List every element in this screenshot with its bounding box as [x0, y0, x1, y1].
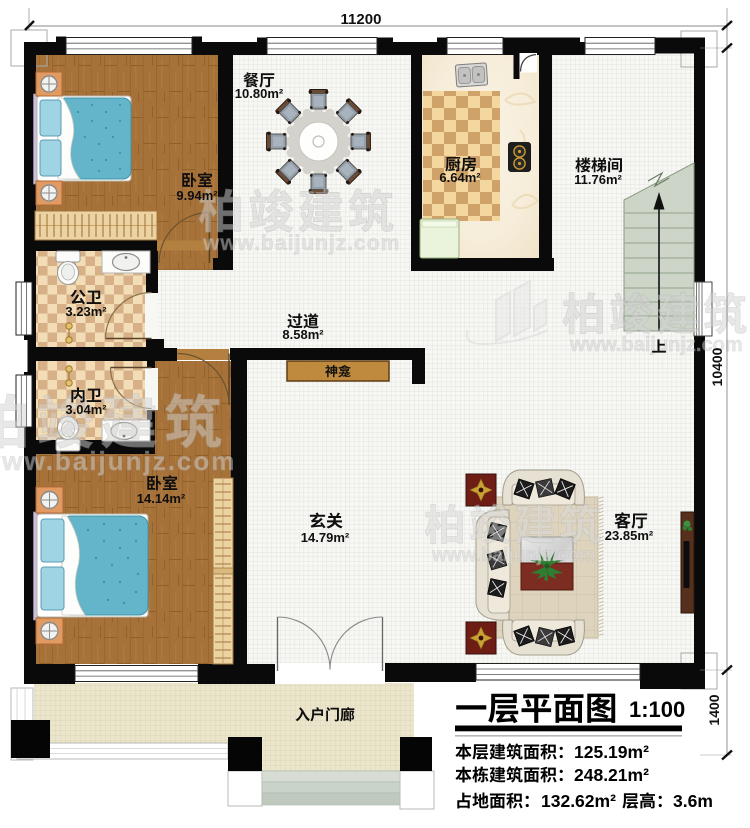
svg-text:www.baijunjz.com: www.baijunjz.com — [0, 446, 236, 476]
svg-text:www.baijunjz.com: www.baijunjz.com — [202, 232, 400, 255]
svg-text:1:100: 1:100 — [629, 697, 685, 722]
svg-text:14.14m²: 14.14m² — [137, 491, 186, 506]
svg-text:125.19m²: 125.19m² — [574, 742, 649, 762]
svg-text:248.21m²: 248.21m² — [574, 765, 649, 785]
svg-text:3.04m²: 3.04m² — [65, 402, 107, 417]
svg-text:www.baijunjz.com: www.baijunjz.com — [431, 545, 596, 566]
svg-text:11200: 11200 — [341, 11, 382, 28]
svg-text:10400: 10400 — [709, 347, 725, 386]
svg-text:3.6m: 3.6m — [673, 791, 713, 811]
svg-text:132.62m²: 132.62m² — [541, 791, 616, 811]
svg-text:14.79m²: 14.79m² — [301, 530, 350, 545]
svg-text:9.94m²: 9.94m² — [176, 188, 218, 203]
svg-text:1400: 1400 — [706, 694, 722, 725]
svg-text:11.76m²: 11.76m² — [574, 172, 622, 187]
svg-text:3.23m²: 3.23m² — [65, 304, 107, 319]
svg-text:23.85m²: 23.85m² — [605, 528, 654, 543]
svg-text:10.80m²: 10.80m² — [235, 86, 284, 101]
svg-text:8.58m²: 8.58m² — [282, 327, 324, 342]
svg-text:6.64m²: 6.64m² — [439, 170, 481, 185]
